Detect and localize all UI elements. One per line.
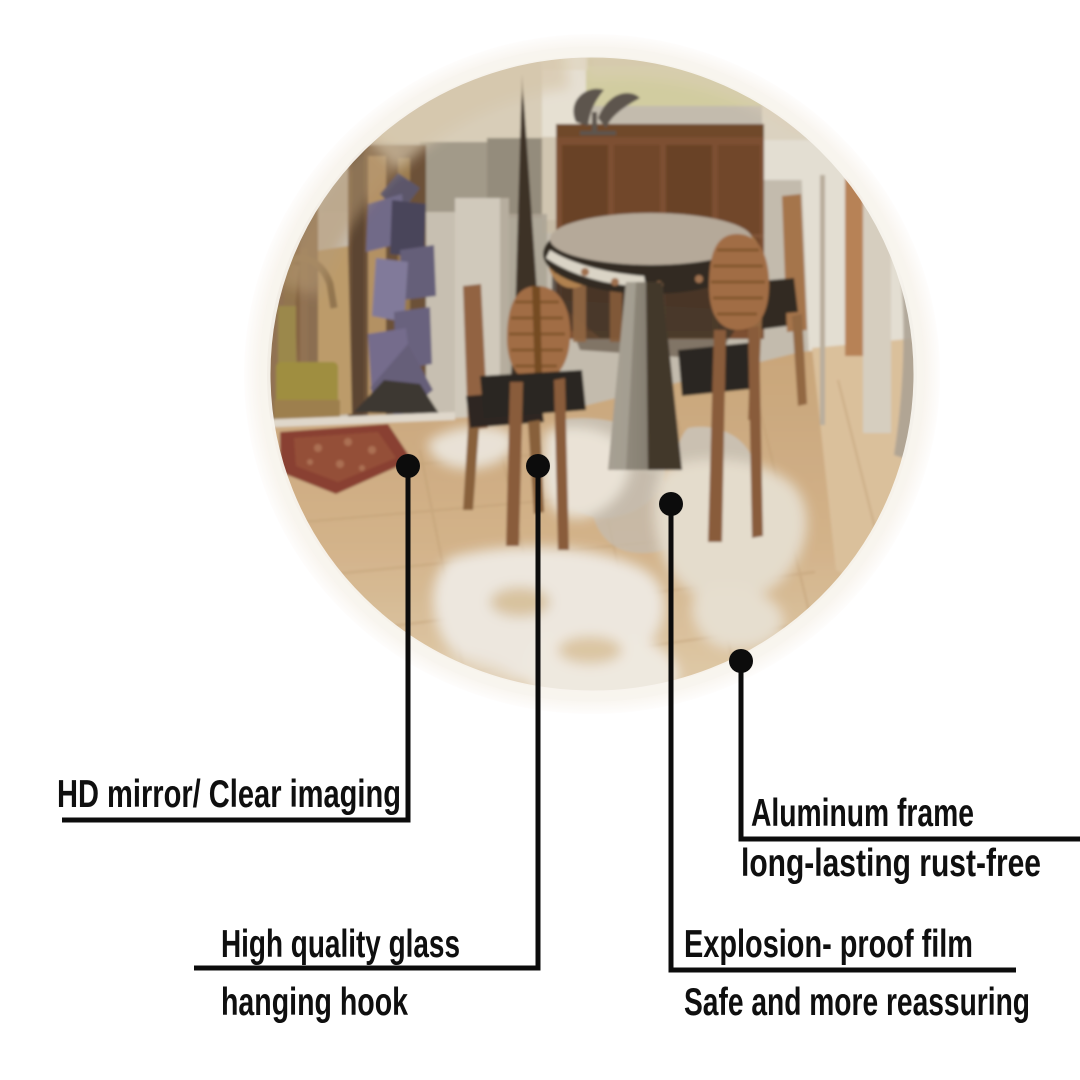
svg-text:hanging hook: hanging hook — [221, 981, 408, 1024]
svg-text:Explosion- proof film: Explosion- proof film — [684, 923, 973, 966]
svg-text:Safe and more reassuring: Safe and more reassuring — [684, 981, 1030, 1024]
svg-text:Aluminum frame: Aluminum frame — [751, 792, 974, 835]
svg-text:High quality glass: High quality glass — [221, 923, 460, 966]
svg-text:HD mirror/ Clear imaging: HD mirror/ Clear imaging — [57, 773, 401, 816]
svg-text:long-lasting rust-free: long-lasting rust-free — [741, 842, 1041, 885]
